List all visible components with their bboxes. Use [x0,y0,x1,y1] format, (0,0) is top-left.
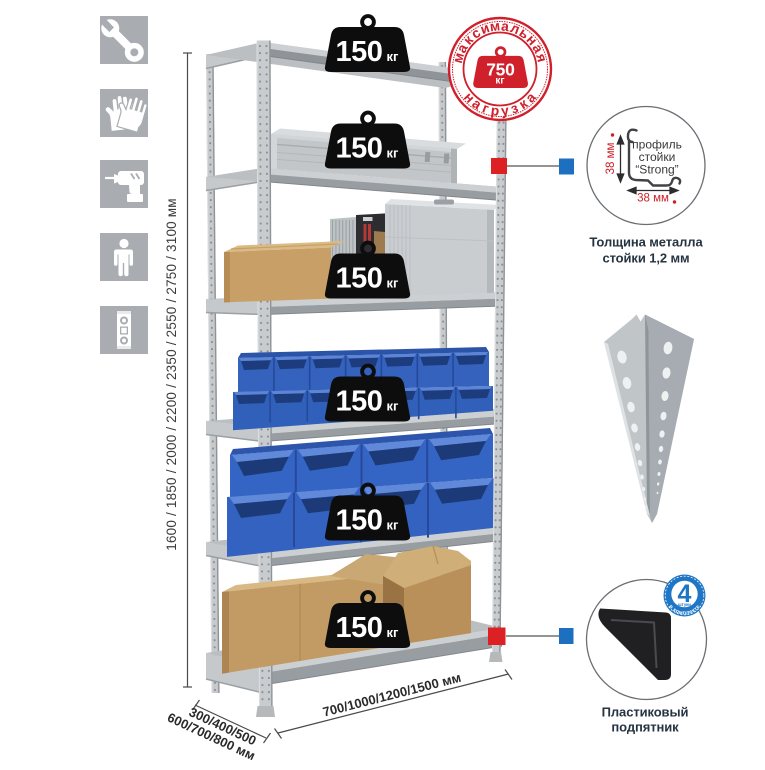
svg-text:штуки: штуки [678,602,691,607]
svg-text:150: 150 [336,263,383,295]
svg-text:150: 150 [336,505,383,537]
svg-text:1600 / 1850 / 2000 / 2200 / 23: 1600 / 1850 / 2000 / 2200 / 2350 / 2550 … [164,198,179,551]
svg-text:кг: кг [387,518,400,533]
svg-text:кг: кг [387,49,400,64]
svg-text:стойки 1,2 мм: стойки 1,2 мм [602,251,689,266]
svg-text:р: р [490,103,500,119]
svg-text:кг: кг [387,625,400,640]
svg-text:“Strong”: “Strong” [635,163,678,177]
svg-text:подпятник: подпятник [611,720,679,735]
svg-text:Пластиковый: Пластиковый [602,705,689,720]
svg-text:150: 150 [336,133,383,165]
svg-text:Толщина металла: Толщина металла [589,235,703,250]
svg-text:150: 150 [336,36,383,68]
svg-text:150: 150 [336,612,383,644]
svg-text:кг: кг [387,276,400,291]
svg-text:150: 150 [336,386,383,418]
svg-text:м: м [489,18,501,34]
svg-text:38 мм: 38 мм [605,143,617,175]
svg-text:кг: кг [495,76,504,87]
svg-text:38 мм: 38 мм [637,193,669,205]
svg-text:кг: кг [387,399,400,414]
svg-text:кг: кг [387,146,400,161]
